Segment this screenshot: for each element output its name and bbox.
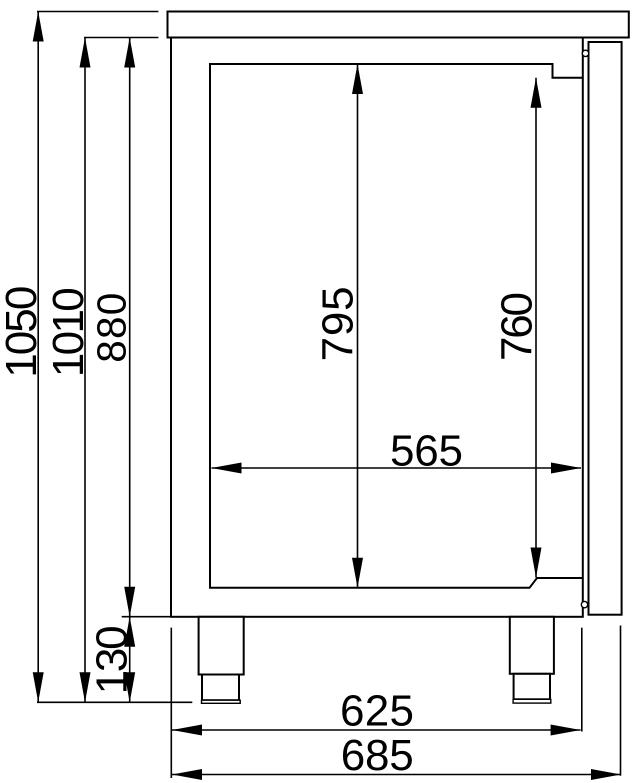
svg-text:880: 880 — [89, 293, 135, 363]
svg-text:795: 795 — [314, 286, 363, 361]
svg-text:1050: 1050 — [0, 286, 46, 378]
svg-text:130: 130 — [87, 625, 136, 694]
svg-text:625: 625 — [340, 686, 414, 735]
svg-text:760: 760 — [493, 292, 542, 361]
svg-text:565: 565 — [390, 426, 463, 475]
svg-text:685: 685 — [341, 731, 414, 780]
svg-text:1010: 1010 — [44, 287, 93, 377]
